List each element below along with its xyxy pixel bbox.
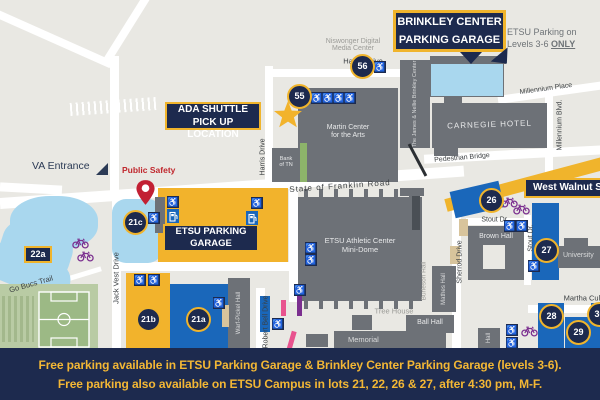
bicycle-icon <box>521 324 538 342</box>
building-bank-of-tn: Bank of TN <box>272 148 300 182</box>
ev-charger-icon <box>246 211 258 225</box>
building-small-south <box>306 334 328 347</box>
brinkley-center-label: The James & Nellie Brinkley Center <box>412 61 418 148</box>
banner-line1: Free parking available in ETSU Parking G… <box>0 356 600 375</box>
levels-note: ETSU Parking on Levels 3-6 ONLY <box>507 26 600 50</box>
levels-note-only: ONLY <box>551 39 575 49</box>
brown-label: Brown Hall <box>468 233 524 241</box>
street-robert-bell: Robert Bell Drive <box>263 296 270 349</box>
building-carnegie-hotel: CARNEGIE HOTEL <box>432 103 547 148</box>
brinkley-callout: BRINKLEY CENTERPARKING GARAGE <box>393 10 506 52</box>
bicycle-icon <box>77 249 94 267</box>
ev-charger-icon <box>167 209 179 223</box>
building-brown-hall: Brown Hall <box>468 226 524 280</box>
street-harris-vert: Harris Drive <box>260 139 267 176</box>
hall-label: Hall <box>486 333 492 343</box>
lot-marker-29: 29 <box>566 320 591 345</box>
public-safety-label: Public Safety <box>122 165 175 175</box>
building-mathes: Mathes Hall <box>432 266 456 312</box>
wheelchair-icon: ♿ <box>272 318 284 330</box>
road-garage-south <box>118 262 294 271</box>
bleachers <box>2 296 34 342</box>
va-entrance-label: VA Entrance <box>32 160 90 172</box>
bicycle-icon <box>513 202 530 220</box>
lot-marker-21c: 21c <box>123 210 148 235</box>
wheelchair-icon: ♿ <box>516 220 528 232</box>
crosswalk-pink-1 <box>281 300 286 316</box>
tree-house-label: Tree House <box>375 307 414 316</box>
wheelchair-icon: ♿ <box>374 61 386 73</box>
campus-map: Martin Center for the Arts Bank of TN Th… <box>0 0 600 400</box>
lot-22a-badge: 22a <box>24 246 52 263</box>
ada-callout: ADA SHUTTLEPICK UP LOCATION <box>165 102 261 130</box>
wheelchair-icon: ♿ <box>251 197 263 209</box>
building-university-notch <box>564 238 588 246</box>
bike-lane-purple <box>297 294 302 316</box>
wheelchair-icon: ♿ <box>167 196 179 208</box>
bank-label-2: of TN <box>272 162 300 168</box>
brown-courtyard <box>483 245 505 269</box>
west-walnut-callout: West Walnut St. <box>524 178 600 198</box>
burleson-label: Burleson Hall <box>421 262 428 301</box>
carnegie-annex <box>444 96 462 104</box>
building-tan-2 <box>459 219 468 236</box>
building-tree-house <box>352 315 372 330</box>
brinkley-parking-garage <box>430 63 504 97</box>
banner-line2: Free parking also available on ETSU Camp… <box>0 375 600 394</box>
carnegie-label: CARNEGIE HOTEL <box>432 118 547 131</box>
lot-marker-21a: 21a <box>186 307 211 332</box>
mathes-label: Mathes Hall <box>441 273 447 305</box>
street-millennium-blvd: Millennium Blvd. <box>557 100 564 151</box>
building-green-strip <box>300 143 307 182</box>
public-safety-pin-icon <box>135 179 156 206</box>
wheelchair-icon: ♿ <box>148 274 160 286</box>
martin-label-1: Martin Center <box>298 124 398 132</box>
building-memorial: Memorial <box>334 331 446 348</box>
niswonger-label: Niswonger DigitalMedia Center <box>326 38 380 52</box>
wheelchair-icon: ♿ <box>528 260 540 272</box>
road-nw-left <box>0 8 113 68</box>
wheelchair-icon: ♿ <box>148 212 160 224</box>
wheelchair-icon: ♿ <box>344 92 356 104</box>
warf-pickel-label: Warf-Pickel Hall <box>236 292 242 334</box>
lot-marker-28: 28 <box>539 304 564 329</box>
university-label: University <box>563 252 600 259</box>
etsu-garage-label: ETSU PARKINGGARAGE <box>163 224 259 252</box>
building-university: University <box>558 246 600 268</box>
ball-label: Ball Hall <box>406 319 454 327</box>
wheelchair-icon: ♿ <box>305 242 317 254</box>
building-brinkley-center: The James & Nellie Brinkley Center <box>400 60 430 148</box>
street-martha-culp: Martha Culp <box>564 294 600 303</box>
building-warf-pickel: Warf-Pickel Hall <box>228 278 250 348</box>
brinkley-pointer-icon <box>460 52 482 64</box>
wheelchair-icon: ♿ <box>294 284 306 296</box>
wheelchair-icon: ♿ <box>305 254 317 266</box>
wheelchair-icon: ♿ <box>506 324 518 336</box>
martin-label-2: for the Arts <box>298 132 398 140</box>
road-va-vertical <box>110 56 119 198</box>
lot-marker-21b: 21b <box>136 307 161 332</box>
wheelchair-icon: ♿ <box>213 297 225 309</box>
wheelchair-icon: ♿ <box>504 220 516 232</box>
pedestrian-bridge-bar <box>412 196 420 230</box>
banner: Free parking available in ETSU Parking G… <box>0 348 600 400</box>
lot-marker-55: 55 <box>287 84 312 109</box>
va-entrance-arrow-icon <box>96 163 108 175</box>
memorial-label: Memorial <box>348 335 446 344</box>
road-nw-right <box>104 0 152 62</box>
building-north-dome <box>400 188 424 196</box>
street-sherrod: Sherrod Drive <box>457 240 464 283</box>
building-hall-south: Hall <box>478 328 500 348</box>
soccer-field <box>38 291 90 348</box>
lot-marker-26: 26 <box>479 188 504 213</box>
lot-marker-56: 56 <box>350 54 375 79</box>
street-jack-vest: Jack Vest Drive <box>112 252 121 304</box>
road-va-entrance <box>0 182 62 194</box>
lot-marker-27: 27 <box>534 238 559 263</box>
wheelchair-icon: ♿ <box>134 274 146 286</box>
